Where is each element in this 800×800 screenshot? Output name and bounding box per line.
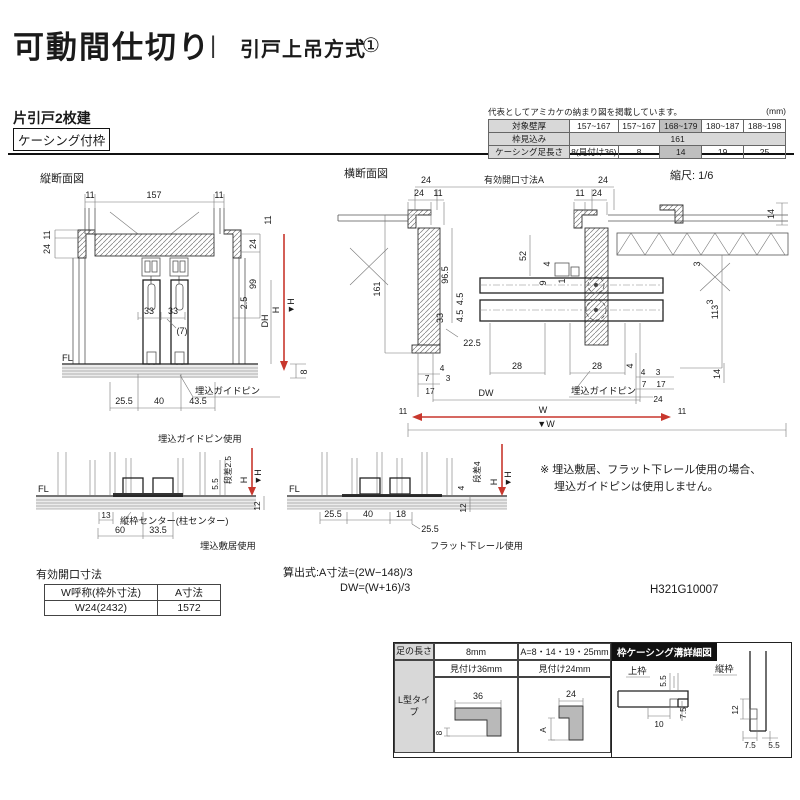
opening-table: W呼称(枠外寸法) A寸法 W24(2432) 1572 xyxy=(44,584,221,616)
opening-table-title: 有効開口寸法 xyxy=(36,566,221,582)
dim: ▼H xyxy=(286,298,296,313)
spec-cell: 188~198 xyxy=(744,120,786,133)
dim: ▼H xyxy=(503,471,513,486)
dim: 33.5 xyxy=(149,525,167,535)
groove-detail-panel: 枠ケーシング溝詳細図 上枠 5.5 7.5 10 縦枠 xyxy=(611,643,790,757)
dim: 4 xyxy=(641,367,646,377)
side-frame-groove: 縦枠 12 7.5 5.5 xyxy=(713,651,780,750)
dim: 25.5 xyxy=(324,509,342,519)
vsec-title: 縦断面図 xyxy=(40,171,84,185)
top-frame-label: 上枠 xyxy=(628,665,647,676)
casing-leg-table: 足の長さ 8mm A=8・14・19・25mm L型タイプ 見付け36mm 見付… xyxy=(393,642,792,758)
dim: 11 xyxy=(263,215,273,224)
dim: 113 xyxy=(710,305,720,319)
spec-note: 代表としてアミカケの納まり図を掲載しています。 xyxy=(488,106,682,118)
dim: 25.5 xyxy=(115,396,133,406)
dim: ▼W xyxy=(537,419,555,429)
profile-24-drawing: 24 A xyxy=(519,678,610,752)
dim: 5.5 xyxy=(210,478,220,490)
dim: 14 xyxy=(712,369,722,379)
dim: 5.5 xyxy=(768,740,780,750)
h-dimension-arrow: H ▼H xyxy=(489,444,513,496)
cell: 1572 xyxy=(158,601,221,616)
spec-table: 対象壁厚 157~167 157~167 168~179 180~187 188… xyxy=(488,119,786,159)
side-frame-label: 縦枠 xyxy=(715,663,734,674)
spec-cell: 25 xyxy=(744,146,786,159)
dim: H xyxy=(271,307,281,314)
opening-table-header: W呼称(枠外寸法) A寸法 xyxy=(45,585,221,601)
dim: 4 xyxy=(456,485,466,490)
footnote-line1: ※ 埋込敷居、フラット下レール使用の場合、 xyxy=(540,462,790,479)
dim: 43.5 xyxy=(189,396,207,406)
dim: DW xyxy=(479,388,494,398)
vertical-section-drawing: 縦断面図 xyxy=(28,168,320,430)
dim: DH xyxy=(260,315,270,328)
dim: 96.5 xyxy=(440,266,450,284)
dim: 11 xyxy=(575,188,584,198)
dim: 17 xyxy=(425,386,435,396)
dim: 25.5 xyxy=(421,524,439,534)
dim: 11 xyxy=(399,406,408,416)
dim: 段差2.5 xyxy=(223,456,233,485)
profile-36-drawing: 36 8 xyxy=(435,678,517,752)
opening-table-block: 有効開口寸法 W呼称(枠外寸法) A寸法 W24(2432) 1572 xyxy=(36,566,221,616)
leg-grid: 足の長さ 8mm A=8・14・19・25mm L型タイプ 見付け36mm 見付… xyxy=(394,643,611,757)
leg-row-label: L型タイプ xyxy=(394,660,434,753)
dim: H xyxy=(239,477,249,484)
dim: 33 xyxy=(168,306,178,316)
dim: 11 xyxy=(42,230,52,239)
dim: 3 xyxy=(656,367,661,377)
door-type-label: 片引戸2枚建 xyxy=(13,108,91,128)
dim: 7.5 xyxy=(744,740,756,750)
cell: W24(2432) xyxy=(45,601,158,616)
horizontal-section-drawing: 横断面図 縮尺: 1/6 xyxy=(330,163,795,443)
guide-pin-label: 埋込ガイドピン xyxy=(195,386,260,396)
hsec-title: 横断面図 xyxy=(344,166,388,180)
dim: 24 xyxy=(421,175,431,185)
dim: 24 xyxy=(42,244,52,254)
title-divider: | xyxy=(210,32,216,60)
spec-unit: (mm) xyxy=(766,106,786,118)
profile-24-cell: 24 A xyxy=(518,677,611,753)
dim: 11 xyxy=(214,190,223,200)
dim: 14 xyxy=(766,209,776,219)
dim: 4 xyxy=(625,363,635,368)
spec-cell: 8(見付け36) xyxy=(570,146,618,159)
footnote: ※ 埋込敷居、フラット下レール使用の場合、 埋込ガイドピンは使用しません。 xyxy=(540,462,790,495)
detail-name: フラット下レール使用 xyxy=(430,540,523,551)
scale-label: 縮尺: 1/6 xyxy=(670,168,713,182)
spec-table-note-row: 代表としてアミカケの納まり図を掲載しています。 (mm) xyxy=(488,106,786,118)
dim: 24 xyxy=(414,188,424,198)
dim: 17 xyxy=(656,379,666,389)
spec-merged-cell: 161 xyxy=(570,133,786,146)
dim: 9 xyxy=(538,280,548,285)
top-frame-groove: 上枠 5.5 7.5 10 xyxy=(618,665,688,729)
dim: W xyxy=(539,405,548,415)
drawing-sheet: 可動間仕切り | 引戸上吊方式 ① 片引戸2枚建 ケーシング付枠 代表としてアミ… xyxy=(0,0,800,800)
dim: 24 xyxy=(592,188,602,198)
dim: 157 xyxy=(146,190,161,200)
circled-number: ① xyxy=(362,33,380,58)
flat-rail-detail: FL H ▼H 段差4 4 12 25.5 40 18 25.5 フラット下レー… xyxy=(282,432,538,562)
spec-cell: 180~187 xyxy=(702,120,744,133)
dim: 4 xyxy=(440,363,445,373)
dim: ▼H xyxy=(253,469,263,484)
page-subtitle: 引戸上吊方式 xyxy=(240,33,366,62)
dim: A xyxy=(538,727,548,733)
formula-line1: 算出式:A寸法=(2W−148)/3 xyxy=(283,566,413,581)
spec-cell: 157~167 xyxy=(570,120,618,133)
detail-caption: 埋込ガイドピン使用 xyxy=(158,433,242,444)
dim: 33 xyxy=(144,306,154,316)
dim: 段差4 xyxy=(472,461,482,483)
spec-cell-highlight: 168~179 xyxy=(660,120,702,133)
dim: 161 xyxy=(372,281,382,296)
door-panel xyxy=(143,280,160,364)
formula-block: 算出式:A寸法=(2W−148)/3 DW=(W+16)/3 xyxy=(283,566,413,596)
dim: 7 xyxy=(642,379,647,389)
leg-subheader-2: 見付け24mm xyxy=(518,660,611,677)
dim: 13 xyxy=(101,510,111,520)
dim: 8 xyxy=(435,730,444,735)
fl-label: FL xyxy=(289,484,300,494)
dim: 5.5 xyxy=(658,675,668,687)
footnote-line2: 埋込ガイドピンは使用しません。 xyxy=(540,479,790,496)
opening-table-row: W24(2432) 1572 xyxy=(45,601,221,616)
dim: 7.5 xyxy=(678,707,688,719)
dim: 10 xyxy=(654,719,664,729)
dim: 99 xyxy=(248,279,258,289)
vsec-structure xyxy=(62,208,258,378)
dim: 11 xyxy=(678,406,687,416)
formula-line2: DW=(W+16)/3 xyxy=(340,581,413,596)
dim: 4.5 xyxy=(455,310,465,323)
detail-name: 埋込敷居使用 xyxy=(200,540,256,551)
document-number: H321G10007 xyxy=(650,584,718,596)
fl-label: FL xyxy=(38,484,49,494)
dim: 12 xyxy=(458,503,468,513)
dim: (7) xyxy=(177,326,188,336)
spec-row-wall: 対象壁厚 157~167 157~167 168~179 180~187 188… xyxy=(489,120,786,133)
dim: 40 xyxy=(363,509,373,519)
spec-cell: 8 xyxy=(618,146,660,159)
spec-cell-highlight: 14 xyxy=(660,146,702,159)
dim: 28 xyxy=(592,361,602,371)
spec-cell: 157~167 xyxy=(618,120,660,133)
spec-cell: 19 xyxy=(702,146,744,159)
dim: 4.5 xyxy=(455,293,465,306)
dim: 12 xyxy=(730,705,740,715)
dim: 1 xyxy=(557,278,567,283)
dim: 7 xyxy=(425,373,430,383)
leg-header-0: 足の長さ xyxy=(394,643,434,660)
spec-row-label: ケーシング足長さ xyxy=(489,146,570,159)
dim: 11 xyxy=(433,188,442,198)
dim: 24 xyxy=(248,239,258,249)
spec-table-block: 代表としてアミカケの納まり図を掲載しています。 (mm) 対象壁厚 157~16… xyxy=(488,106,786,159)
dim: 52 xyxy=(518,251,528,261)
door-panel xyxy=(171,280,188,364)
door-panel-plan xyxy=(480,300,663,321)
dim: 8 xyxy=(299,369,309,374)
spec-row-label: 枠見込み xyxy=(489,133,570,146)
page-title: 可動間仕切り xyxy=(13,22,211,67)
profile-36-cell: 36 8 xyxy=(434,677,518,753)
center-label: 縦枠センター(柱センター) xyxy=(120,515,228,526)
groove-title: 枠ケーシング溝詳細図 xyxy=(612,643,717,661)
spec-row-frame-depth: 枠見込み 161 xyxy=(489,133,786,146)
col-header: A寸法 xyxy=(158,585,221,601)
spec-row-casing-leg: ケーシング足長さ 8(見付け36) 8 14 19 25 xyxy=(489,146,786,159)
door-panel-plan xyxy=(480,277,663,293)
leg-header-2: A=8・14・19・25mm xyxy=(518,643,611,660)
opening-dim-label: 有効開口寸法A xyxy=(484,174,544,185)
h-dimension-arrow: H ▼H xyxy=(239,448,263,496)
dim: 2.5 xyxy=(239,297,249,310)
dim: H xyxy=(489,479,499,486)
dim: 60 xyxy=(115,525,125,535)
leg-header-1: 8mm xyxy=(434,643,518,660)
dim: 40 xyxy=(154,396,164,406)
frame-type-label: ケーシング付枠 xyxy=(13,128,110,151)
dim: 3 xyxy=(705,299,715,304)
dim: 11 xyxy=(85,190,94,200)
dim: 33 xyxy=(435,313,445,323)
fl-label: FL xyxy=(62,353,73,363)
dim: 18 xyxy=(396,509,406,519)
recessed-sill-detail: 埋込ガイドピン使用 FL H ▼H 段差2.5 5.5 12 13 xyxy=(28,432,300,562)
leg-subheader-1: 見付け36mm xyxy=(434,660,518,677)
dim: 36 xyxy=(473,691,483,701)
h-dimension-arrow: H ▼H xyxy=(271,234,296,371)
dim: 12 xyxy=(252,501,262,511)
dim: 28 xyxy=(512,361,522,371)
dim: 22.5 xyxy=(463,338,481,348)
dim: 24 xyxy=(598,175,608,185)
guide-pin-label: 埋込ガイドピン xyxy=(571,386,636,396)
dim: 3 xyxy=(446,373,451,383)
col-header: W呼称(枠外寸法) xyxy=(45,585,158,601)
dim: 3 xyxy=(692,261,702,266)
dim: 4 xyxy=(542,261,552,266)
spec-row-label: 対象壁厚 xyxy=(489,120,570,133)
dim: 24 xyxy=(653,394,663,404)
dim: 24 xyxy=(566,689,576,699)
